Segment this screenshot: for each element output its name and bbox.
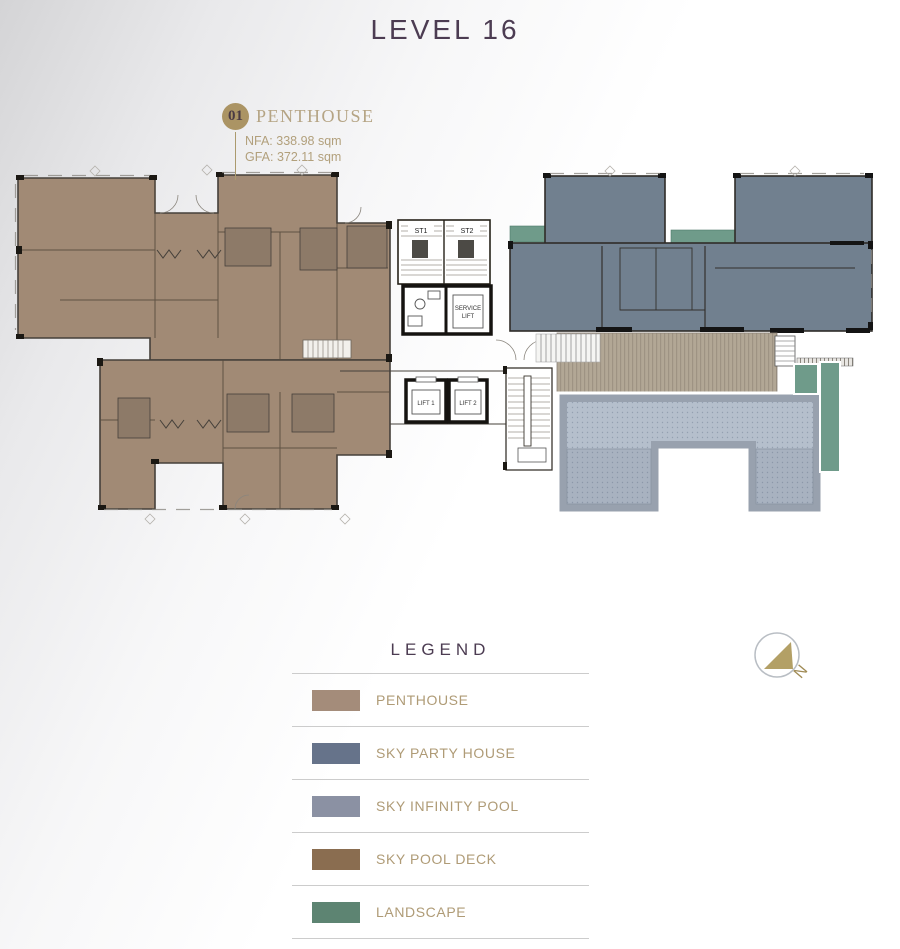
unit-number-badge: 01 — [222, 103, 249, 130]
sky-party-house-label: SKY PARTY HOUSE — [376, 745, 515, 761]
service-lift-label-1: SERVICE — [455, 306, 481, 312]
page-background: LEVEL 16 01 PENTHOUSE NFA: 338.98 sqm GF… — [0, 0, 900, 949]
lift2-label: LIFT 2 — [459, 401, 477, 407]
sky-pool-deck-swatch — [312, 849, 360, 870]
sky-party-house — [508, 173, 873, 333]
stairwell-block: ST1 ST2 — [398, 220, 490, 284]
lift-block: LIFT 1 LIFT 2 — [406, 377, 487, 422]
landscape-label: LANDSCAPE — [376, 904, 466, 920]
landscape-swatch — [312, 902, 360, 923]
compass: N — [755, 633, 811, 682]
sky-party-house-swatch — [312, 743, 360, 764]
sky-pool-deck-label: SKY POOL DECK — [376, 851, 497, 867]
callout-leader-line — [235, 132, 236, 180]
legend-row-sky-party-house: SKY PARTY HOUSE — [292, 726, 589, 779]
stair1-label: ST1 — [415, 228, 428, 235]
sky-infinity-pool-label: SKY INFINITY POOL — [376, 798, 519, 814]
penthouse-wing — [16, 172, 393, 510]
sky-infinity-pool-swatch — [312, 796, 360, 817]
service-lift-block: SERVICE LIFT — [403, 286, 491, 334]
legend-row-sky-infinity-pool: SKY INFINITY POOL — [292, 779, 589, 832]
unit-gfa: GFA: 372.11 sqm — [245, 149, 375, 165]
legend: LEGEND PENTHOUSE SKY PARTY HOUSE SKY INF… — [292, 640, 589, 939]
landscape-strip-gap — [671, 230, 735, 243]
penthouse-label: PENTHOUSE — [376, 692, 469, 708]
legend-row-penthouse: PENTHOUSE — [292, 673, 589, 726]
private-stair — [303, 340, 351, 358]
legend-title: LEGEND — [292, 640, 589, 660]
penthouse-swatch — [312, 690, 360, 711]
sky-infinity-pool — [558, 393, 822, 513]
service-lift-label-2: LIFT — [462, 314, 475, 320]
unit-callout: 01 PENTHOUSE NFA: 338.98 sqm GFA: 372.11… — [222, 103, 375, 166]
legend-row-landscape: LANDSCAPE — [292, 885, 589, 939]
legend-row-sky-pool-deck: SKY POOL DECK — [292, 832, 589, 885]
lift1-label: LIFT 1 — [417, 401, 435, 407]
unit-name: PENTHOUSE — [256, 106, 375, 127]
unit-nfa: NFA: 338.98 sqm — [245, 133, 375, 149]
stair2-label: ST2 — [461, 228, 474, 235]
